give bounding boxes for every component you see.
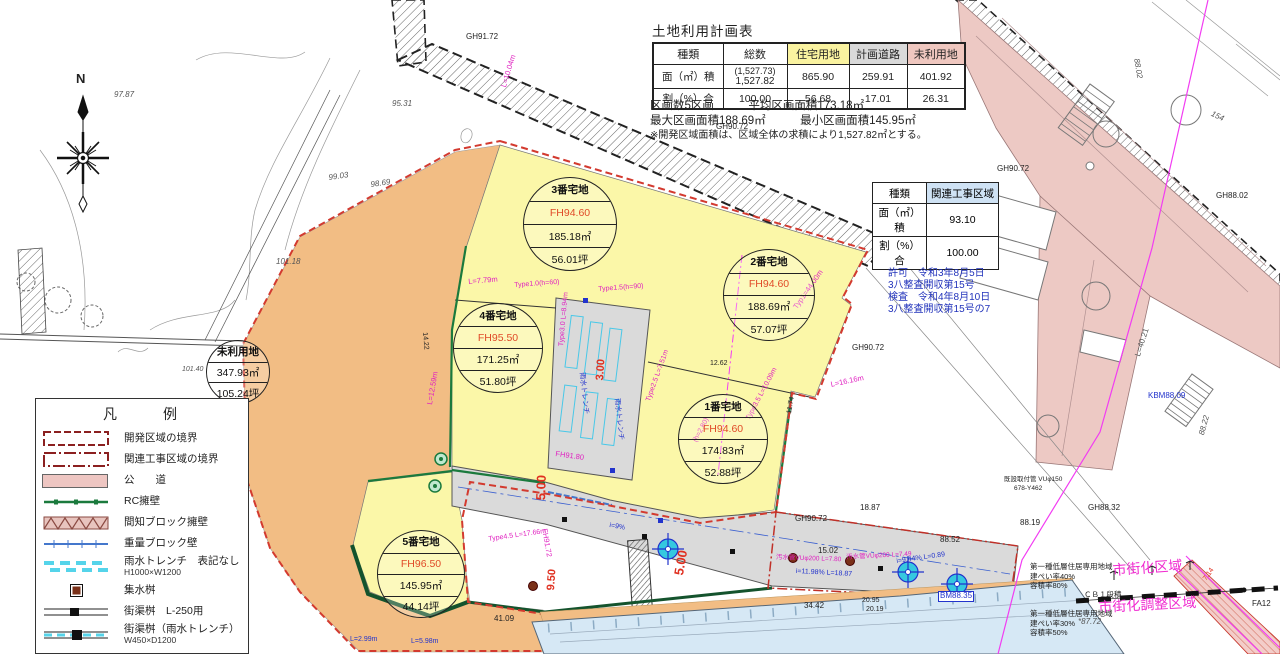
related-works-table: 種類 関連工事区域 面（㎡）積 93.10 割（%）合 100.00 <box>872 182 999 270</box>
public-road-swatch <box>42 474 118 488</box>
hatched-bar-left <box>18 248 46 334</box>
permit-line-2: 3八整査開収第15号 <box>888 280 990 292</box>
legend-item-catch-basin: 集水桝 <box>42 580 244 601</box>
row-area-label: 面（㎡）積 <box>653 65 723 89</box>
catch-basin-swatch <box>42 584 118 597</box>
note-minmax-area: 最大区画面積188.69㎡ 最小区画面積145.95㎡ <box>650 114 927 129</box>
area-total: 1,527.82 <box>726 76 785 87</box>
legend-box: 凡 例 開発区域の境界 関連工事区域の境界 公 道 RC擁壁 <box>35 398 249 654</box>
area-total-paren: (1,527.73) <box>726 66 785 76</box>
note-development-area: ※開発区域面積は、区域全体の求積により1,527.82㎡とする。 <box>650 129 927 143</box>
gutter-basin-swatch <box>42 603 118 621</box>
cell-area-total: (1,527.73) 1,527.82 <box>723 65 787 89</box>
planned-road-vertical <box>548 298 650 480</box>
lot-lines <box>1152 0 1280 96</box>
gutter-basin-trench-swatch <box>42 625 118 645</box>
cell-area-unused: 401.92 <box>907 65 965 89</box>
legend-item-kenchi-block-wall: 間知ブロック擁壁 <box>42 512 244 533</box>
land-use-table-title: 土地利用計画表 <box>652 20 966 40</box>
stairs-icon-2 <box>1165 374 1213 426</box>
legend-item-rc-wall: RC擁壁 <box>42 491 244 512</box>
legend-item-related-boundary: 関連工事区域の境界 <box>42 449 244 470</box>
dev-boundary-swatch <box>42 430 118 448</box>
legend-item-gutter-basin-trench: 街渠桝（雨水トレンチ）W450×D1200 <box>42 622 244 648</box>
note-parcel-count: 区画数5区画 平均区画面積173.18㎡ <box>650 99 927 114</box>
north-compass <box>57 96 109 212</box>
legend-item-rain-trench: 雨水トレンチ 表記なしH1000×W1200 <box>42 554 244 580</box>
col-type: 種類 <box>653 43 723 65</box>
urbanization-boundary <box>1076 588 1278 602</box>
permit-text: 許可 令和3年8月5日 3八整査開収第15号 検査 令和4年8月10日 3八整査… <box>888 268 990 316</box>
rel-area-label: 面（㎡）積 <box>873 204 927 237</box>
rel-area-value: 93.10 <box>927 204 999 237</box>
rel-ratio-label: 割（%）合 <box>873 237 927 270</box>
kenchi-wall-swatch <box>42 514 118 532</box>
col-unused: 未利用地 <box>907 43 965 65</box>
rc-wall-swatch <box>42 493 118 511</box>
col-total: 総数 <box>723 43 787 65</box>
permit-line-3: 検査 令和4年8月10日 <box>888 292 990 304</box>
related-works-table-block: 種類 関連工事区域 面（㎡）積 93.10 割（%）合 100.00 <box>872 182 999 270</box>
land-use-table-block: 土地利用計画表 種類 総数 住宅用地 計画道路 未利用地 面（㎡）積 (1,52… <box>652 20 966 110</box>
rain-trench-swatch <box>42 557 118 577</box>
heavy-block-swatch <box>42 535 118 553</box>
cell-area-road: 259.91 <box>849 65 907 89</box>
permit-line-4: 3八整査開収第15号の7 <box>888 304 990 316</box>
related-boundary-swatch <box>42 451 118 469</box>
permit-line-1: 許可 令和3年8月5日 <box>888 268 990 280</box>
legend-item-public-road: 公 道 <box>42 470 244 491</box>
rel-col-value: 関連工事区域 <box>927 183 999 204</box>
col-planned-road: 計画道路 <box>849 43 907 65</box>
col-residential: 住宅用地 <box>787 43 849 65</box>
residential-area <box>452 145 866 520</box>
legend-title: 凡 例 <box>42 404 244 424</box>
cell-area-residential: 865.90 <box>787 65 849 89</box>
plan-notes: 区画数5区画 平均区画面積173.18㎡ 最大区画面積188.69㎡ 最小区画面… <box>650 99 927 143</box>
legend-item-heavy-block-wall: 重量ブロック壁 <box>42 533 244 554</box>
legend-item-gutter-basin: 街渠桝 L-250用 <box>42 601 244 622</box>
rel-col-type: 種類 <box>873 183 927 204</box>
site-plan-canvas: NGH91.72GH90.72GH90.72GH90.72GH90.7295.3… <box>0 0 1280 654</box>
rel-ratio-value: 100.00 <box>927 237 999 270</box>
legend-item-development-boundary: 開発区域の境界 <box>42 428 244 449</box>
